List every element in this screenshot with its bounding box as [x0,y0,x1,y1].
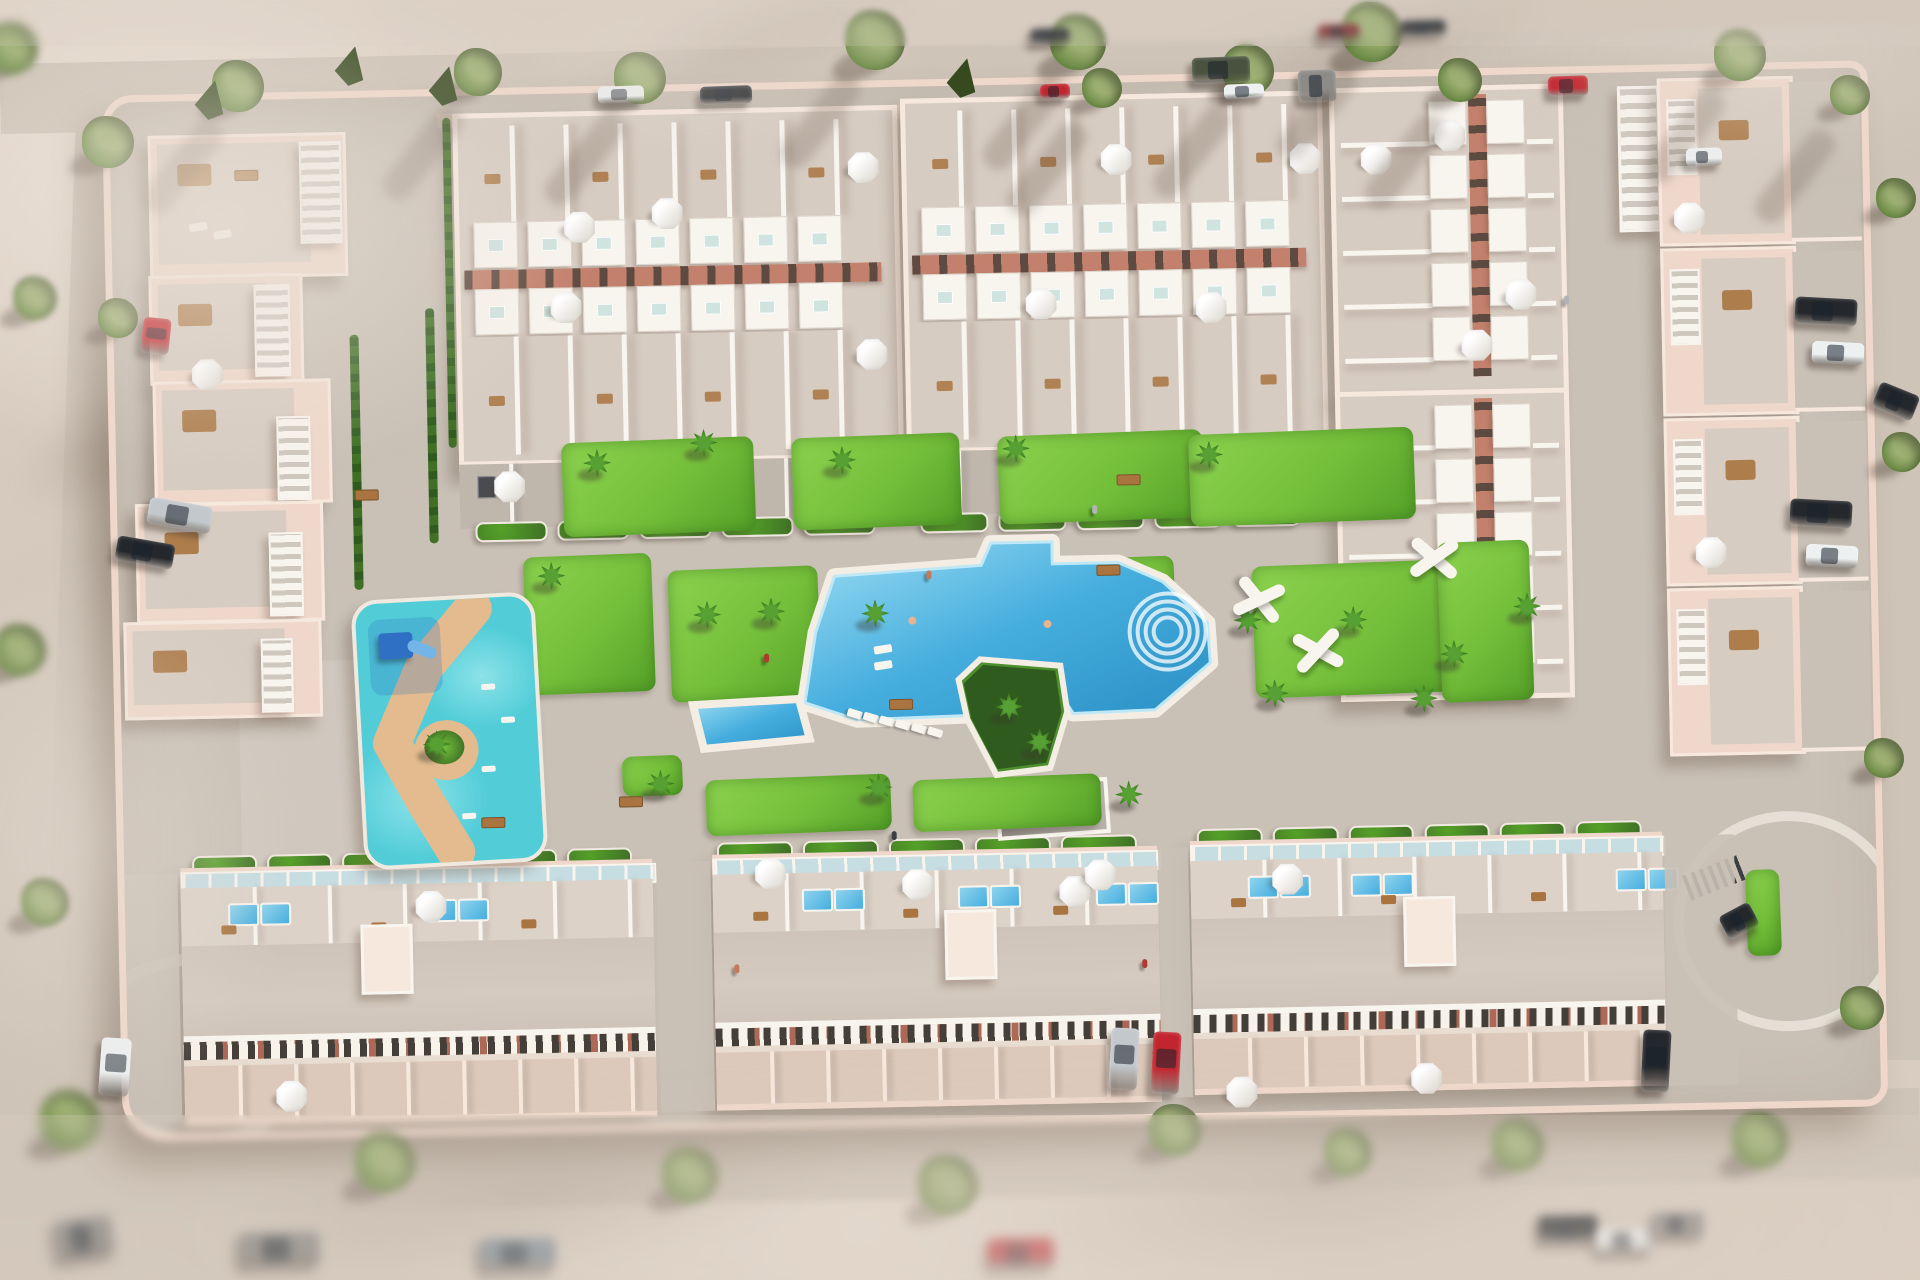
street-tree [454,48,502,96]
patio-divider [1528,1032,1533,1082]
parked-car [1150,1031,1181,1094]
divider-wall [725,121,732,217]
skylight [1045,289,1061,302]
car-windshield [1807,503,1829,523]
patio-divider [770,1052,775,1104]
skylight [543,305,559,318]
patio-divider [1177,446,1182,510]
tree-shadow [598,80,652,118]
umbrella-shadow [647,209,677,226]
unit-roof [1487,153,1526,198]
terrace-furniture [1718,120,1748,141]
water-slide [406,638,438,660]
plunge-pool [1095,882,1126,906]
palm-shadow [1255,699,1281,712]
parked-car [1030,27,1071,44]
pool-bench [462,813,476,820]
patio-divider [509,464,514,528]
bottom-row-building [180,859,657,1126]
front-patios [184,1057,657,1120]
hedge-strip [350,335,364,590]
tree-shadow [66,144,120,182]
divider-wall [514,337,521,455]
divider-wall [1351,661,1439,668]
unit-roof [1486,99,1525,144]
unit-roof [1084,270,1129,317]
bbq-appliance [563,474,581,496]
villa-roof-terrace [1701,257,1788,405]
parked-car [1400,19,1447,37]
cone-shrub [332,43,370,88]
divider-wall [1011,109,1018,205]
side-townhouse-block [1335,387,1575,702]
patio-divider [1287,444,1292,508]
hedge-pod [267,853,332,874]
divider-wall [838,330,845,448]
car-windshield [146,327,167,340]
street-tree [40,1090,100,1150]
lawn [912,773,1102,832]
glass-balustrade [712,850,1161,879]
main-roof [182,937,656,1036]
plunge-pool [458,898,489,922]
plunge-pool [957,885,988,909]
tree-cast-shadow [137,114,228,219]
tree-cast-shadow [1147,98,1238,203]
divider-wall [1173,106,1180,202]
unit-roof [1429,154,1468,199]
palm-tree [1410,684,1439,713]
patio-divider [294,1064,299,1118]
unit-roof [975,205,1020,252]
pool-bench [481,766,495,773]
divider-wall [617,123,624,219]
divider-wall [1084,867,1089,925]
divider-wall [1123,318,1130,436]
street-tree [614,52,666,104]
villa-roof-terrace [1705,427,1792,575]
pool-bench [481,683,495,690]
unit-roof [976,272,1021,319]
patio-divider [826,1050,831,1102]
base-wall [717,1096,1162,1111]
skylight [488,239,504,252]
unit-roof [1493,457,1532,502]
patio-divider [518,1060,523,1114]
terrace-furniture [1053,906,1068,915]
unit-roof [1492,403,1531,448]
street-left [43,99,156,1051]
parasol-umbrella [1410,1062,1443,1095]
terrace-furniture [705,391,721,401]
divider-wall [1348,499,1436,506]
umbrella-shadow [1191,303,1221,320]
patio-divider [1584,1031,1589,1081]
unit-roof [583,286,628,333]
divider-wall [784,873,789,931]
unit-roof [1435,458,1474,503]
hedge-pod [717,841,793,863]
palm-shadow [751,617,777,630]
palm-tree [861,599,890,628]
tree-shadow [1860,200,1902,229]
street-tree [1882,432,1920,472]
street-tree [1082,68,1122,108]
patio-divider [564,463,569,527]
palm-tree [995,692,1024,721]
palm-tree [864,773,893,802]
patio-divider [957,451,962,515]
plunge-pool [426,899,457,923]
divider-wall [1119,107,1126,203]
parasol-umbrella [1433,119,1466,152]
skylight [704,234,720,247]
hedge-pod [1061,834,1137,856]
hedge-pod [975,836,1051,858]
parasol-umbrella [493,470,526,503]
ground-shadow [214,1087,866,1280]
parked-car [1794,296,1857,326]
divider-wall [1562,854,1567,912]
divider-wall [784,331,791,449]
divider-wall [1344,303,1432,310]
divider-wall [1343,249,1431,256]
island-bushes [423,729,465,765]
patio-divider [994,1047,999,1099]
plunge-pool [260,902,291,926]
tree-shadow [901,1187,964,1230]
skylight [759,300,775,313]
unit-roof [1489,261,1528,306]
palm-tree [583,449,612,478]
umbrella-shadow [546,303,576,320]
tree-shadow [1133,1132,1187,1170]
sun-lounger [189,222,208,233]
bbq-appliance [1011,461,1029,483]
wood-bench [355,489,379,500]
parked-car [98,1037,132,1097]
car-windshield [1696,151,1709,164]
roof-hatch [945,909,998,980]
sun-lounger [927,726,944,738]
tree-cast-shadow [377,100,468,205]
skylight [989,223,1005,236]
main-roof [1191,910,1665,1009]
street-tree [1864,738,1904,778]
terrace-furniture [1381,895,1396,904]
street-tree [1714,29,1766,81]
unit-roof [581,219,626,266]
skylight [1205,218,1221,231]
divider-wall [1531,355,1557,361]
skylight [1207,285,1223,298]
plunge-pool [834,888,865,912]
divider-wall [1285,315,1292,433]
unit-roof [1494,511,1533,556]
umbrella-shadow [1021,300,1051,317]
unit-roof [921,207,966,254]
tree-shadow [1814,97,1856,126]
base-wall [1195,1080,1667,1095]
street-tree [82,116,134,168]
stair-ladder [1676,609,1708,686]
patio-divider [238,1065,243,1119]
divider-wall [671,122,678,218]
window-band [184,1033,656,1060]
tree-cast-shadow [774,68,865,173]
parasol-umbrella [1084,859,1117,892]
hedge-pod [1197,828,1263,849]
umbrella-shadow [1407,1074,1437,1091]
car-windshield [1559,79,1573,93]
back-patio-strip [907,440,1320,515]
skylight [1261,284,1277,297]
parked-car [988,1237,1055,1268]
dof-haze [0,560,300,1120]
patio-divider [882,1049,887,1101]
wood-bench [234,170,258,181]
divider-wall [403,884,408,942]
unit-roof [1428,100,1467,145]
pergola-bar [1408,537,1461,579]
villa-building [152,378,332,506]
unit-roof [635,218,680,265]
divider-wall [1529,247,1555,253]
hedge-pod [1154,507,1222,528]
terrace-furniture [1261,374,1277,384]
parasol-umbrella [901,868,934,901]
car-windshield [1156,1049,1177,1069]
dof-haze [380,0,940,160]
divider-wall [1536,605,1562,611]
car-windshield [131,542,153,563]
street-tree [98,298,138,338]
facade-band [464,262,881,289]
terrace-furniture [153,650,187,673]
patio-divider [938,1048,943,1100]
parasol-umbrella [1195,291,1228,324]
patio-divider [1050,1046,1055,1098]
parked-car [1805,544,1858,569]
skylight [991,290,1007,303]
sun-lounger [879,715,896,727]
unit-roof [1438,620,1477,665]
palm-shadow [859,793,885,806]
palm-tree [1002,434,1031,463]
terrace-furniture [813,389,829,399]
hedge-pod [1272,826,1338,847]
hedge-pod [1576,820,1642,841]
street-tree [212,60,264,112]
umbrella-shadow [1080,871,1110,888]
corner-walk-br [1671,809,1888,1034]
parked-car [598,85,645,104]
parasol-umbrella [856,338,889,371]
divider-wall [859,872,864,930]
tree-cast-shadow [977,70,1068,175]
palm-shadow [1434,660,1460,673]
parked-car [1718,902,1760,941]
plunge-pool [1127,882,1158,906]
hedge-pod [1348,825,1414,846]
roof-hatch [361,924,414,995]
parked-car [1040,83,1071,99]
patio-divider [1232,445,1237,509]
umbrella-shadow [843,163,873,180]
terrace-floor [466,329,885,455]
umbrella-shadow [187,371,217,388]
car-windshield [1114,1045,1135,1065]
umbrella-shadow [1096,155,1126,172]
parasol-umbrella [1673,202,1706,235]
palm-shadow [1228,626,1254,639]
divider-wall [957,111,964,207]
lawn [622,755,683,797]
divider-wall [1412,857,1417,915]
villa-building [123,619,323,721]
terrace-furniture [932,159,948,169]
car-windshield [1413,22,1429,34]
car-windshield [164,504,189,526]
amenity-pavement [363,404,1572,868]
unit-roof [1437,566,1476,611]
tree-shadow [1715,1142,1773,1182]
lawn [523,553,656,696]
terrace-furniture [597,394,613,404]
window-band [1193,1006,1665,1033]
back-patio-strip [459,453,895,529]
terrace-furniture [1148,155,1164,165]
lawn [1188,427,1416,527]
hedge-strip [442,118,457,448]
palm-shadow [417,750,443,763]
palm-shadow [577,469,603,482]
roof-terrace [712,866,1158,933]
lawn [1251,559,1471,699]
parasol-umbrella [1360,143,1393,176]
crosswalk [140,220,203,259]
tree-shadow [1308,1154,1358,1189]
palm-shadow [684,449,710,462]
terrace-furniture [1531,892,1546,901]
aerial-site-render [0,0,1920,1280]
parasol-umbrella [1059,875,1092,908]
wood-bench [889,699,913,710]
car-windshield [714,88,732,101]
patio-divider [574,1058,579,1112]
parked-car [1596,1228,1652,1255]
plunge-pool [989,885,1020,909]
bottom-blur-band [0,1115,1920,1280]
terrace-furniture [1729,630,1759,651]
tree-shadow [438,74,488,109]
bbq-appliance [1183,458,1201,480]
divider-wall [1349,553,1437,560]
divider-wall [1350,607,1438,614]
hedge-pod [342,852,407,873]
dof-haze [0,0,600,480]
roof-hatch [1403,896,1456,967]
car-windshield [1884,389,1904,412]
facade-band [1474,398,1498,680]
pergola-bar [1231,582,1287,617]
lawn [1065,555,1177,655]
palm-tree [1115,780,1144,809]
terrace-furniture [1231,898,1246,907]
street-tree [1840,986,1884,1030]
pergola-bar [1409,535,1459,581]
lawn [667,565,822,703]
umbrella-shadow [1669,214,1699,231]
umbrella-shadow [1501,290,1531,307]
parked-car [1538,1214,1598,1243]
unit-roof [1246,267,1291,314]
umbrella-shadow [1691,548,1721,565]
divider-wall [1537,659,1563,665]
divider-wall [1533,443,1559,449]
tree-cast-shadow [1749,123,1840,228]
terrace-furniture [221,925,236,934]
sun-lounger [874,660,893,671]
palm-tree [757,597,786,626]
tree-shadow [828,42,891,85]
palm-shadow [1189,461,1215,474]
terrace-furniture [371,922,386,931]
palm-tree [646,769,675,798]
divider-wall [833,119,840,215]
parked-car [480,1237,557,1270]
tree-shadow [1476,1147,1530,1185]
unit-roof [691,284,736,331]
parasol-umbrella [550,291,583,324]
skylight [489,306,505,319]
terrace-furniture [903,909,918,918]
unit-roof [1436,512,1475,557]
parked-car [1811,341,1864,366]
bbq-appliance [649,473,667,495]
street-tree [1492,1119,1544,1171]
person [892,831,897,840]
unit-roof [529,287,574,334]
divider-wall [1342,195,1430,202]
car-windshield [262,1237,290,1261]
divider-wall [1227,105,1234,201]
bottom-row-building [712,846,1162,1111]
villa-building [147,132,348,280]
umbrella-shadow [411,902,441,919]
street-tree [21,878,69,926]
patio-divider [1248,1038,1253,1088]
car-windshield [1208,61,1228,80]
tree-cast-shadow [1639,83,1730,188]
tree-shadow [1066,90,1108,119]
street-bottom [0,1088,1920,1218]
tree-shadow [1866,454,1908,483]
parked-car [1108,1027,1139,1090]
unit-roof [1434,404,1473,449]
palm-tree [1339,606,1368,635]
villa-driveway [1796,420,1869,581]
divider-wall [568,335,575,453]
divider-wall [730,332,737,450]
skylight [1259,217,1275,230]
unit-roof [689,217,734,264]
plunge-pool [1383,873,1414,897]
cone-shrub [192,77,230,122]
hedge-pod [567,847,632,868]
unit-roof [1083,203,1128,250]
street-tree [918,1155,978,1215]
